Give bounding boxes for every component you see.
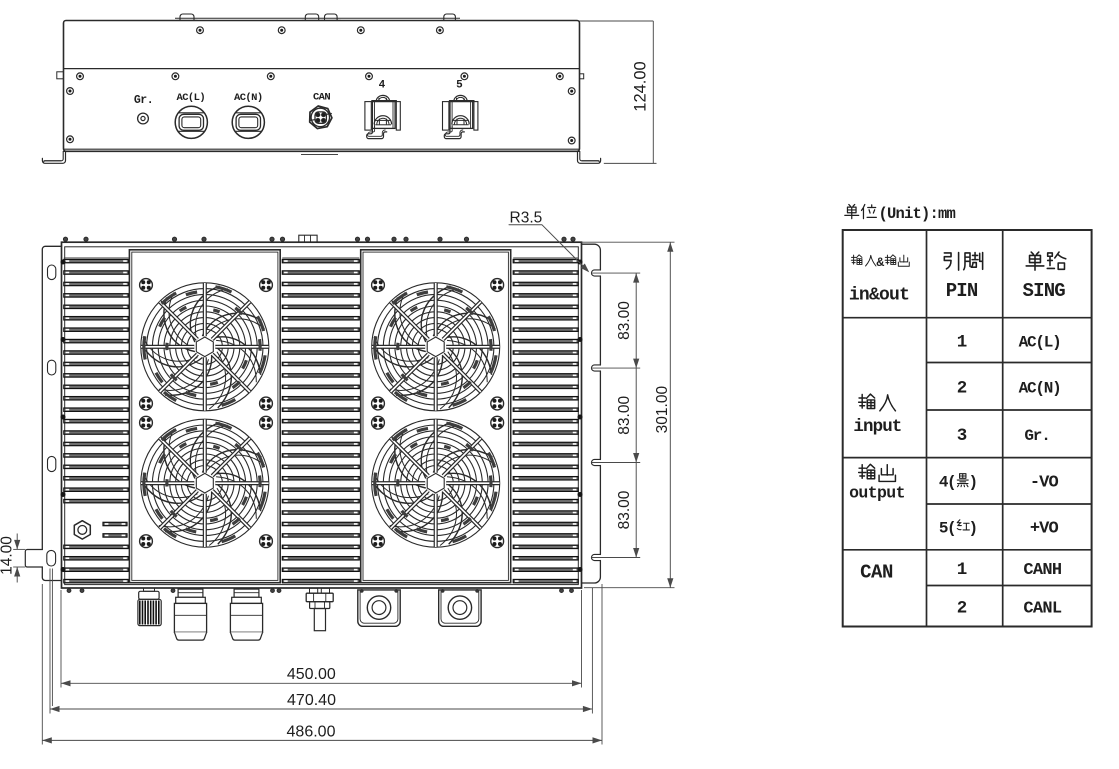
svg-text:AC(N): AC(N) — [1019, 379, 1061, 397]
svg-text:(Unit):mm: (Unit):mm — [879, 205, 956, 223]
svg-text:CAN: CAN — [313, 92, 330, 104]
svg-text:SING: SING — [1022, 280, 1065, 302]
svg-text:2: 2 — [957, 599, 967, 619]
svg-text:): ) — [969, 474, 977, 492]
svg-text:Gr.: Gr. — [134, 94, 153, 107]
svg-text:in&out: in&out — [849, 285, 909, 305]
svg-text:+VO: +VO — [1030, 520, 1059, 539]
svg-text:PIN: PIN — [946, 280, 978, 302]
svg-text:input: input — [853, 417, 901, 437]
svg-text:CANL: CANL — [1023, 600, 1062, 619]
svg-text:Gr.: Gr. — [1024, 427, 1049, 445]
svg-text:AC(L): AC(L) — [1019, 333, 1061, 351]
svg-text:301.00: 301.00 — [654, 386, 671, 434]
svg-text:CANH: CANH — [1023, 561, 1062, 580]
svg-text:CAN: CAN — [860, 562, 893, 584]
svg-text:4(: 4( — [939, 474, 955, 492]
svg-text:5(: 5( — [939, 520, 955, 538]
svg-text:-VO: -VO — [1030, 474, 1059, 493]
svg-text:&: & — [876, 255, 884, 270]
svg-text:83.00: 83.00 — [616, 396, 633, 435]
svg-text:83.00: 83.00 — [616, 490, 633, 529]
svg-text:R3.5: R3.5 — [510, 210, 543, 227]
svg-text:output: output — [849, 483, 905, 502]
svg-text:AC(N): AC(N) — [234, 92, 263, 104]
svg-text:3: 3 — [957, 426, 967, 446]
svg-text:2: 2 — [957, 378, 967, 398]
svg-text:450.00: 450.00 — [287, 666, 336, 683]
svg-text:486.00: 486.00 — [287, 724, 336, 741]
svg-text:1: 1 — [957, 332, 967, 352]
svg-text:83.00: 83.00 — [616, 301, 633, 340]
svg-text:AC(L): AC(L) — [177, 92, 206, 104]
svg-text:470.40: 470.40 — [287, 692, 336, 709]
svg-text:): ) — [969, 520, 977, 538]
svg-text:1: 1 — [957, 560, 967, 580]
svg-text:124.00: 124.00 — [632, 61, 650, 111]
svg-text:14.00: 14.00 — [0, 536, 16, 575]
